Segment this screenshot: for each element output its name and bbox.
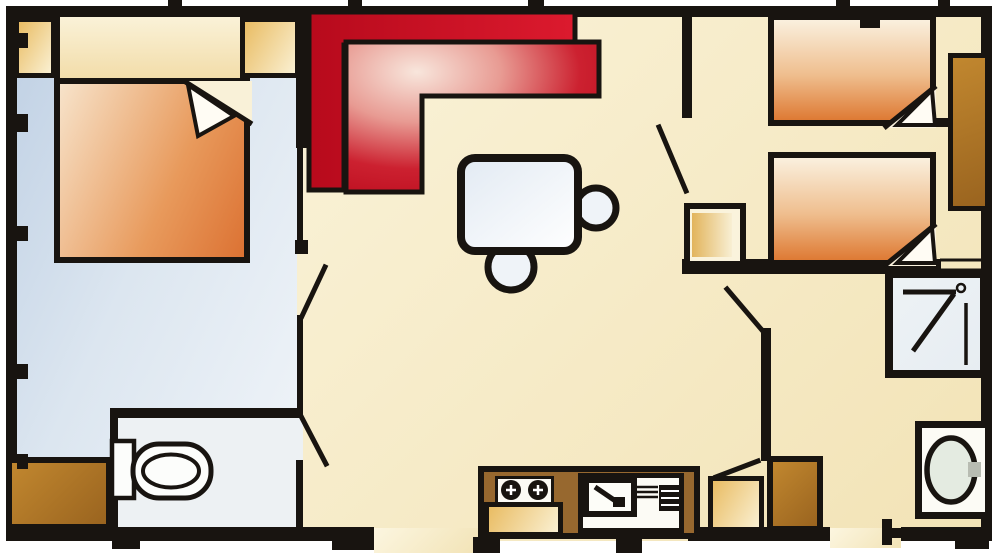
- corridor-cabinet-tan: [708, 476, 764, 532]
- wall-hall-lower: [297, 315, 303, 414]
- washbasin-unit: [915, 421, 992, 519]
- kitchen-front-cabinet: [484, 502, 563, 537]
- wall-wc-top: [110, 408, 303, 418]
- single-bed-bottom: [768, 152, 936, 266]
- wall-bathroom: [761, 328, 771, 461]
- shower: [885, 270, 988, 378]
- wall-wc-right: [296, 460, 303, 530]
- hall-cabinet-door: [692, 213, 732, 257]
- wardrobe-right: [240, 17, 300, 78]
- floor-wc: [110, 410, 303, 530]
- hall-cabinet: [684, 203, 746, 267]
- hob-panel: [495, 476, 554, 505]
- floor-plan: [0, 0, 1000, 553]
- double-bed: [54, 78, 250, 263]
- kitchen-sink-panel: [578, 473, 684, 533]
- wall-master-bedroom-mid: [297, 148, 303, 240]
- wall-twin-bedroom-left: [682, 17, 692, 118]
- corridor-cabinet-brown: [767, 456, 823, 532]
- double-bed-headboard: [54, 17, 250, 80]
- front-entrance-opening: [374, 528, 478, 553]
- wall-bottom-right: [901, 527, 992, 541]
- tall-wardrobe: [948, 53, 990, 211]
- rear-door-opening: [830, 528, 901, 548]
- wardrobe-left: [14, 17, 56, 78]
- wc-side-cabinet: [6, 457, 112, 530]
- wall-master-bedroom-end-post: [295, 240, 308, 254]
- single-bed-top: [768, 14, 936, 126]
